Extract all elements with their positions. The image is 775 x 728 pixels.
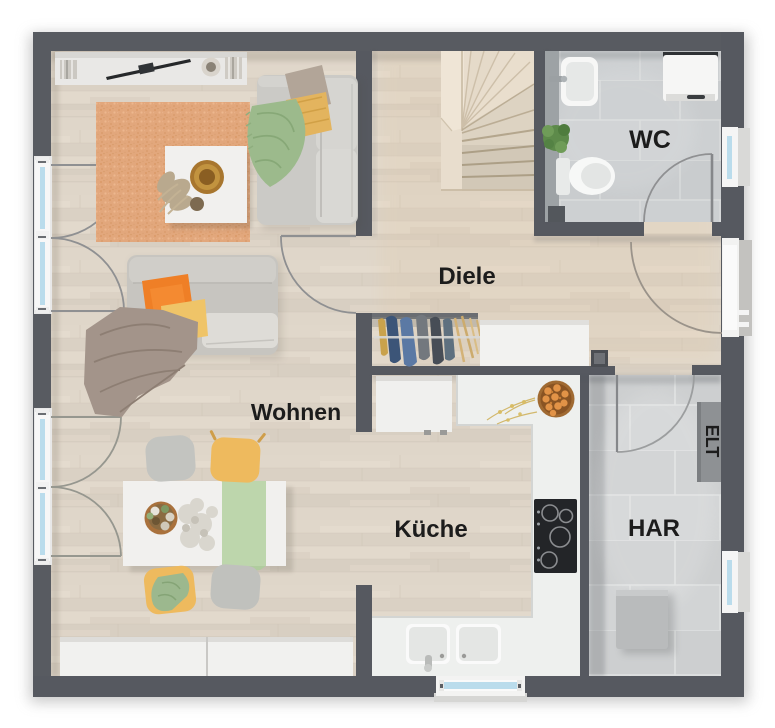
svg-text:HAR: HAR	[628, 515, 680, 542]
svg-text:Küche: Küche	[394, 516, 467, 543]
svg-text:Diele: Diele	[438, 263, 495, 290]
svg-text:ELT: ELT	[702, 425, 722, 458]
svg-text:WC: WC	[629, 126, 671, 154]
svg-text:Wohnen: Wohnen	[251, 399, 341, 425]
